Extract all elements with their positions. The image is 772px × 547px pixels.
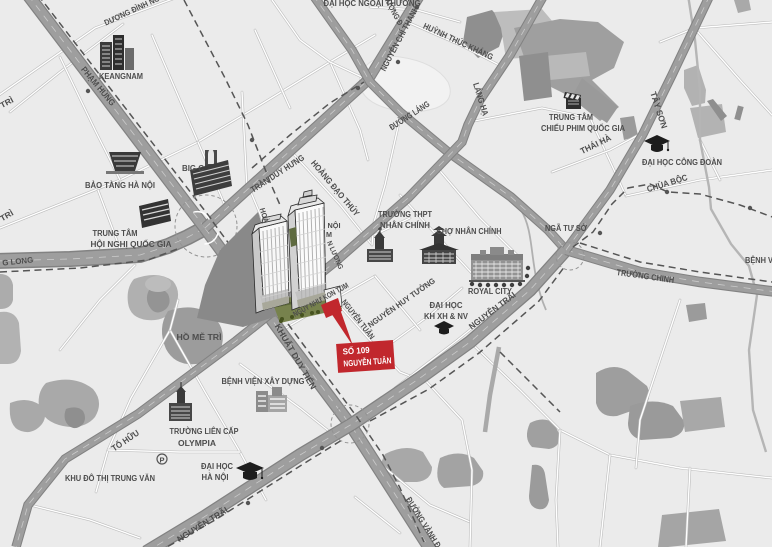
svg-text:CHIẾU PHIM QUỐC GIA: CHIẾU PHIM QUỐC GIA	[541, 123, 625, 133]
svg-text:ĐẠI HỌC NGOẠI THƯƠNG: ĐẠI HỌC NGOẠI THƯƠNG	[324, 0, 421, 8]
svg-text:NHÂN CHÍNH: NHÂN CHÍNH	[380, 221, 430, 230]
svg-text:BỆNH VIỆN XÂY DỰNG: BỆNH VIỆN XÂY DỰNG	[222, 377, 305, 386]
svg-text:P: P	[159, 455, 164, 464]
svg-text:ĐẠI HỌC CÔNG ĐOÀN: ĐẠI HỌC CÔNG ĐOÀN	[642, 158, 722, 167]
svg-text:HÀ NỘI: HÀ NỘI	[202, 473, 229, 482]
svg-text:KEANGNAM: KEANGNAM	[99, 72, 143, 81]
svg-text:NỘI: NỘI	[328, 221, 341, 230]
svg-text:HỒ MỄ TRÌ: HỒ MỄ TRÌ	[177, 332, 222, 342]
svg-text:HỘI NGHỊ QUỐC GIA: HỘI NGHỊ QUỐC GIA	[91, 239, 172, 249]
svg-text:TRƯỜNG THPT: TRƯỜNG THPT	[378, 210, 432, 219]
svg-text:NGÃ TƯ SỞ: NGÃ TƯ SỞ	[545, 224, 587, 233]
svg-text:ĐẠI HỌC: ĐẠI HỌC	[201, 462, 233, 471]
svg-text:BIG C: BIG C	[182, 164, 204, 173]
svg-text:TRƯỜNG LIÊN CẤP: TRƯỜNG LIÊN CẤP	[170, 426, 240, 436]
svg-text:CHỢ NHÂN CHÍNH: CHỢ NHÂN CHÍNH	[437, 227, 502, 236]
svg-text:KH XH & NV: KH XH & NV	[424, 312, 469, 321]
svg-text:SỐ 109: SỐ 109	[342, 344, 370, 357]
svg-text:KHU ĐÔ THỊ TRUNG VĂN: KHU ĐÔ THỊ TRUNG VĂN	[65, 474, 155, 483]
svg-text:TRUNG TÂM: TRUNG TÂM	[93, 229, 138, 238]
svg-text:ĐẠI HỌC: ĐẠI HỌC	[430, 301, 463, 310]
svg-text:M: M	[326, 230, 332, 239]
svg-text:BỆNH VI: BỆNH VI	[745, 256, 772, 265]
svg-text:TRUNG TÂM: TRUNG TÂM	[549, 113, 593, 122]
svg-text:BẢO TÀNG HÀ NỘI: BẢO TÀNG HÀ NỘI	[85, 181, 155, 190]
svg-text:OLYMPIA: OLYMPIA	[178, 439, 216, 448]
